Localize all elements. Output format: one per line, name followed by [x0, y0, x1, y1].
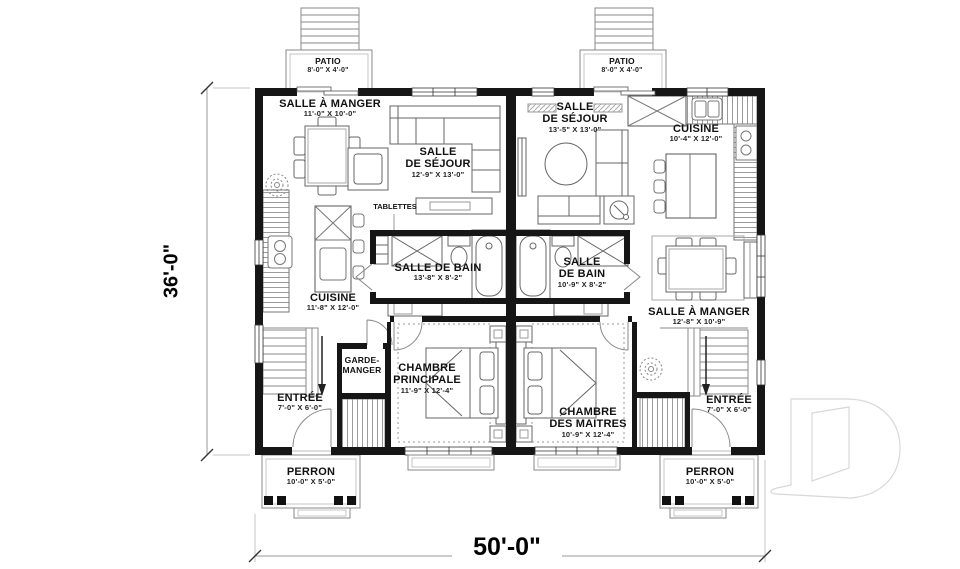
- label-porch-left: PERRON10'-0" X 5'-0": [287, 466, 336, 487]
- label-bedroom-right: CHAMBREDES MAITRES10'-9" X 12'-4": [549, 406, 626, 439]
- floor-plan-drawing: [0, 0, 960, 569]
- watermark-logo-d: [771, 399, 900, 498]
- overall-depth-dimension: 36'-0": [161, 244, 184, 298]
- overall-width-dimension: 50'-0": [473, 533, 541, 562]
- label-patio-right: PATIO8'-0" X 4'-0": [601, 57, 642, 74]
- label-pantry-left: GARDE-MANGER: [343, 356, 382, 375]
- label-living-left: SALLEDE SÉJOUR12'-9" X 13'-0": [405, 146, 470, 179]
- stairs-left: [263, 328, 326, 396]
- patio-stairs-right: [595, 8, 653, 50]
- window-boxes: [408, 455, 620, 470]
- tv-console-left: [416, 198, 492, 214]
- closet-right: [640, 398, 685, 448]
- label-dining-left: SALLE À MANGER11'-0" X 10'-0": [279, 98, 381, 119]
- label-patio-left: PATIO8'-0" X 4'-0": [307, 57, 348, 74]
- label-bedroom-left: CHAMBREPRINCIPALE11'-9" X 12'-4": [393, 362, 461, 395]
- label-shelves-left: TABLETTES: [373, 203, 417, 211]
- stairs-right: [660, 328, 748, 396]
- label-kitchen-left: CUISINE11'-8" X 12'-0": [307, 292, 359, 313]
- label-entry-left: ENTRÉE7'-0" X 6'-0": [277, 392, 323, 413]
- plant-right: [640, 358, 662, 380]
- label-kitchen-right: CUISINE10'-4" X 12'-0": [670, 123, 723, 144]
- armchair-left: [348, 148, 388, 190]
- dining-set-right: [652, 236, 757, 300]
- label-porch-right: PERRON10'-0" X 5'-0": [686, 466, 735, 487]
- label-dining-right: SALLE À MANGER12'-8" X 10'-9": [648, 306, 750, 327]
- label-bath-right: SALLEDE BAIN10'-9" X 8'-2": [558, 256, 607, 289]
- kitchen-right: [628, 96, 757, 240]
- label-entry-right: ENTRÉE7'-0" X 6'-0": [706, 394, 752, 415]
- label-living-right: SALLEDE SÉJOUR13'-5" X 13'-0": [542, 101, 607, 134]
- floor-plan-page: PATIO8'-0" X 4'-0" PATIO8'-0" X 4'-0" SA…: [0, 0, 960, 569]
- label-bath-left: SALLE DE BAIN13'-8" X 8'-2": [395, 262, 482, 283]
- closet-left: [342, 399, 385, 448]
- patio-stairs-left: [301, 8, 359, 50]
